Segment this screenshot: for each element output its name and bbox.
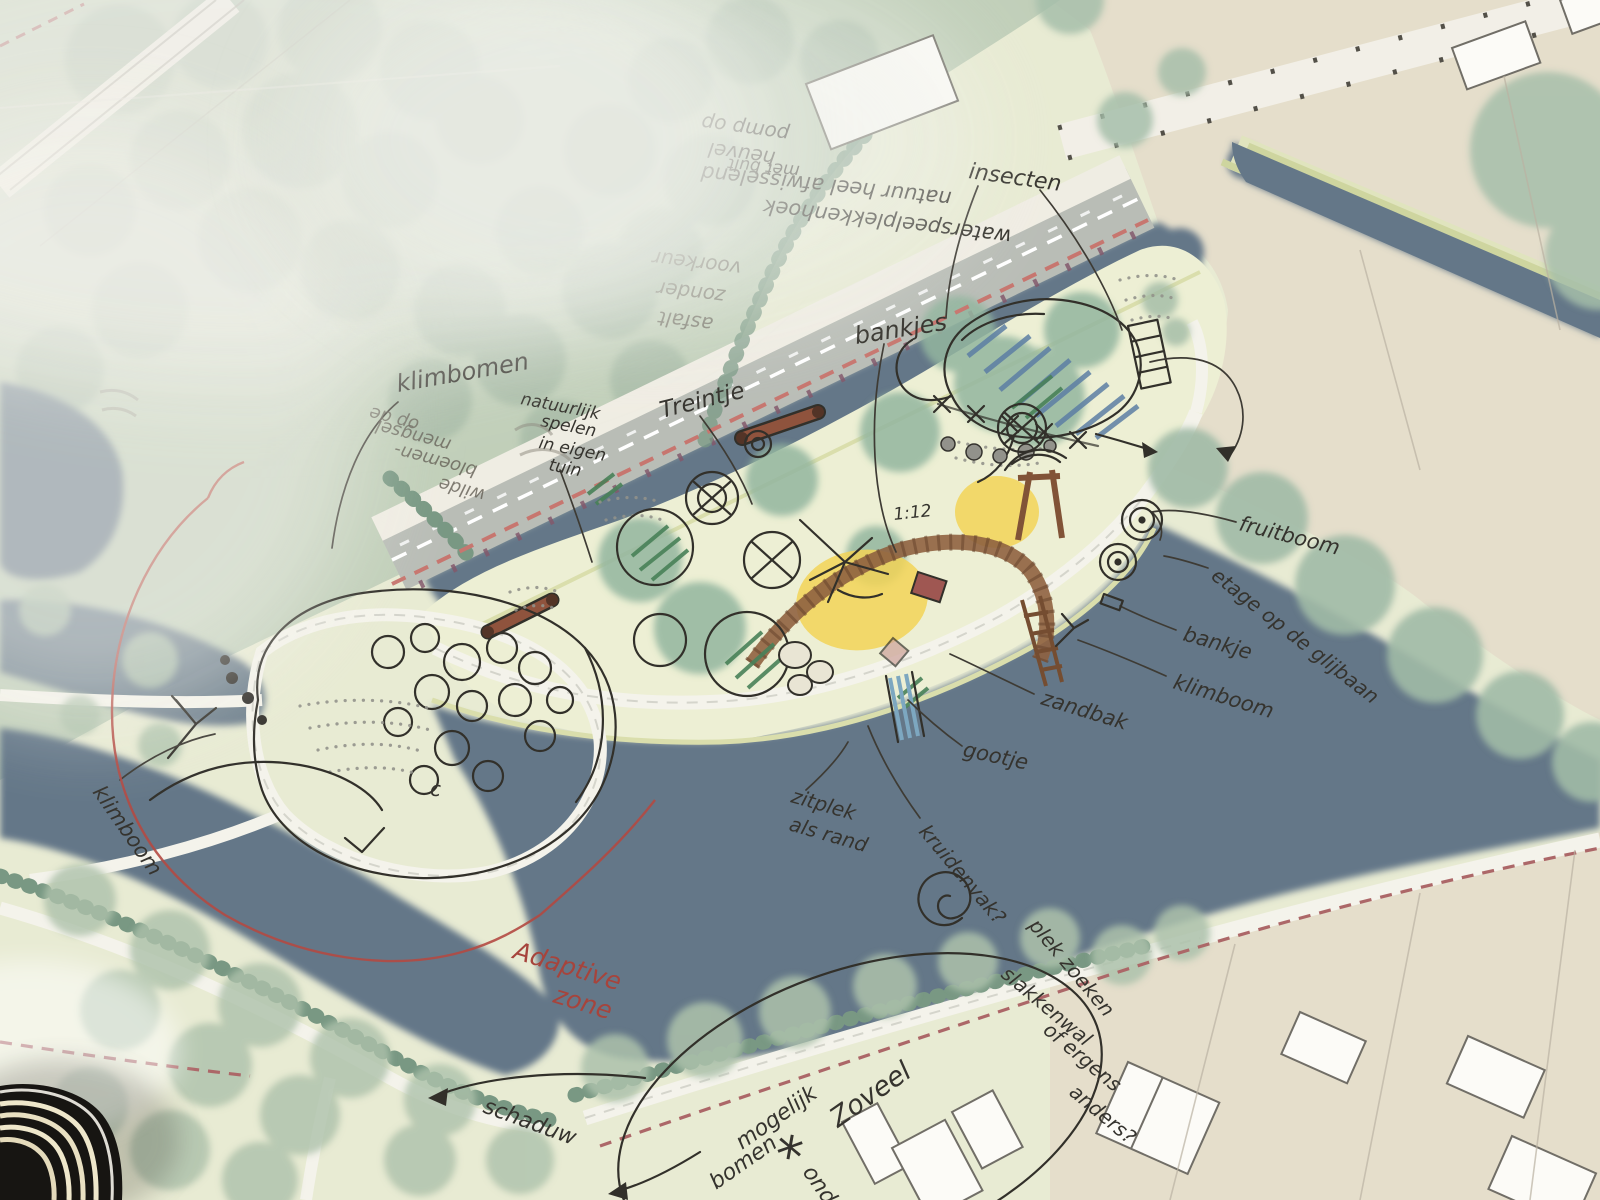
sketch-photo: klimbomen natuurlijk spelen in eigen tui… [0,0,1600,1200]
paper-tint [0,0,1600,1200]
haze-overlay [0,0,1600,1200]
site-plan-svg: klimbomen natuurlijk spelen in eigen tui… [0,0,1600,1200]
